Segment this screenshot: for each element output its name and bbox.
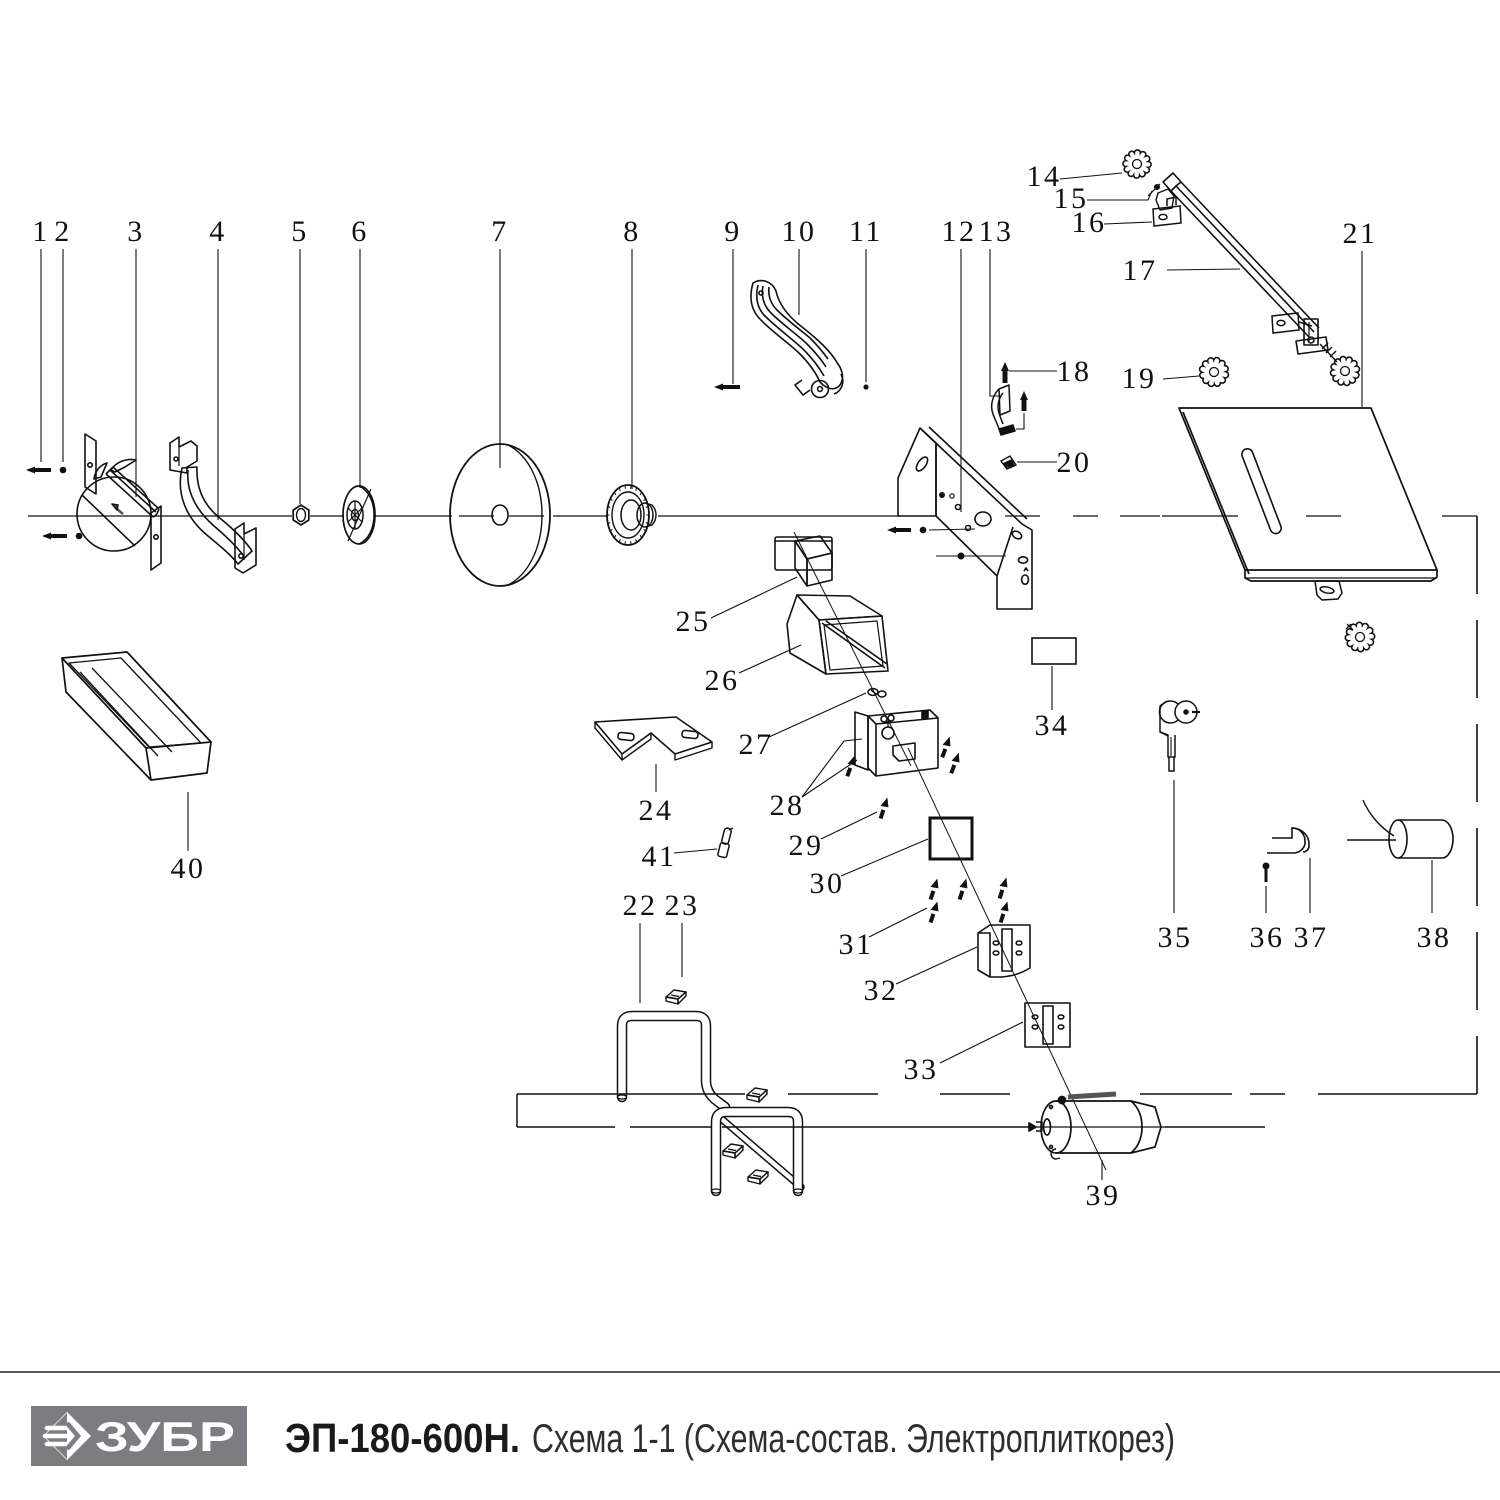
svg-text:33: 33 [904,1053,939,1086]
svg-text:ЗУБР: ЗУБР [95,1413,235,1460]
svg-text:24: 24 [639,794,674,827]
svg-text:26: 26 [705,664,740,697]
svg-text:39: 39 [1086,1179,1121,1212]
svg-text:21: 21 [1343,217,1378,250]
svg-text:3: 3 [127,215,145,248]
svg-text:36: 36 [1250,921,1285,954]
svg-text:35: 35 [1158,921,1193,954]
svg-text:20: 20 [1057,446,1092,479]
svg-text:18: 18 [1057,355,1092,388]
svg-text:29: 29 [789,829,824,862]
svg-text:31: 31 [839,928,874,961]
svg-text:13: 13 [979,215,1014,248]
svg-text:10: 10 [782,215,817,248]
svg-text:41: 41 [642,840,677,873]
svg-text:34: 34 [1035,709,1070,742]
svg-text:6: 6 [351,215,369,248]
svg-text:7: 7 [491,215,509,248]
svg-text:19: 19 [1122,362,1157,395]
svg-text:16: 16 [1072,206,1107,239]
svg-text:9: 9 [724,215,742,248]
svg-text:5: 5 [291,215,309,248]
svg-text:Схема 1-1 (Схема-состав. Элект: Схема 1-1 (Схема-состав. Электроплиткоре… [532,1417,1175,1461]
svg-text:4: 4 [209,215,227,248]
svg-text:2: 2 [54,215,72,248]
svg-text:37: 37 [1294,921,1329,954]
svg-text:30: 30 [810,867,845,900]
svg-text:38: 38 [1417,921,1452,954]
svg-text:11: 11 [849,215,883,248]
svg-text:25: 25 [676,605,711,638]
svg-text:ЭП-180-600Н.: ЭП-180-600Н. [285,1415,520,1461]
svg-text:32: 32 [864,974,899,1007]
svg-text:28: 28 [770,789,805,822]
svg-text:1: 1 [32,215,50,248]
svg-text:17: 17 [1123,254,1158,287]
svg-text:12: 12 [942,215,977,248]
svg-text:27: 27 [739,728,774,761]
svg-text:8: 8 [623,215,641,248]
svg-text:40: 40 [171,852,206,885]
svg-text:23: 23 [665,889,700,922]
svg-text:22: 22 [623,889,658,922]
